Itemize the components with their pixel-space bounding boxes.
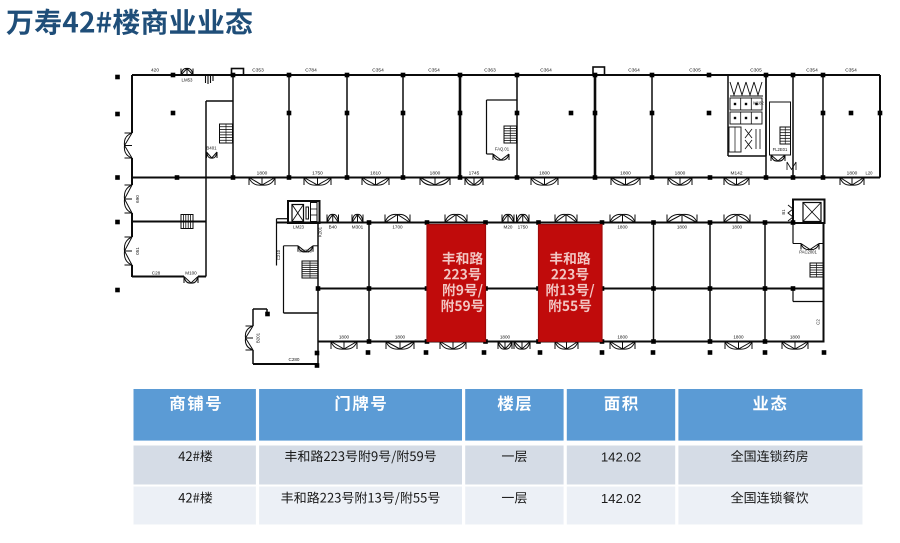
svg-text:M182: M182: [753, 101, 764, 106]
svg-text:051: 051: [135, 247, 140, 255]
svg-text:1800: 1800: [790, 335, 801, 340]
svg-text:1800: 1800: [430, 171, 441, 177]
svg-text:C354: C354: [845, 68, 857, 74]
svg-text:M301: M301: [352, 225, 364, 230]
svg-text:M142: M142: [731, 171, 743, 177]
svg-text:B401: B401: [206, 146, 217, 151]
svg-text:1800: 1800: [732, 225, 743, 230]
svg-text:B40: B40: [329, 225, 338, 230]
svg-text:PAC2001: PAC2001: [799, 250, 817, 255]
svg-text:1750: 1750: [312, 171, 323, 177]
svg-text:C280: C280: [289, 357, 300, 362]
svg-text:C354: C354: [806, 68, 818, 74]
svg-text:C2: C2: [816, 319, 821, 325]
svg-text:C364: C364: [540, 68, 552, 74]
svg-text:1800: 1800: [617, 225, 628, 230]
svg-text:C784: C784: [305, 68, 317, 74]
svg-text:C305: C305: [750, 68, 762, 74]
svg-text:1750: 1750: [518, 225, 529, 230]
svg-text:420: 420: [151, 68, 159, 74]
svg-text:LM53: LM53: [182, 78, 194, 83]
svg-text:FL2E01: FL2E01: [773, 147, 788, 152]
svg-text:M2010: M2010: [299, 249, 312, 254]
svg-text:1800: 1800: [539, 171, 550, 177]
svg-text:1700: 1700: [392, 225, 403, 230]
svg-text:142.02: 142.02: [601, 450, 641, 465]
svg-text:C364: C364: [628, 68, 640, 74]
svg-text:C354: C354: [428, 68, 440, 74]
svg-text:B201: B201: [256, 332, 261, 343]
svg-text:1800: 1800: [620, 171, 631, 177]
svg-text:142.02: 142.02: [601, 491, 641, 506]
svg-text:M20: M20: [504, 225, 513, 230]
svg-text:C353: C353: [252, 68, 264, 74]
svg-text:1745: 1745: [469, 171, 480, 177]
svg-text:1810: 1810: [370, 171, 381, 177]
svg-text:FAQ.01: FAQ.01: [495, 147, 510, 152]
svg-text:1800: 1800: [847, 171, 858, 177]
svg-text:690: 690: [135, 195, 140, 203]
svg-text:1800: 1800: [339, 335, 350, 340]
svg-text:L20: L20: [866, 171, 874, 176]
svg-text:C28: C28: [152, 271, 161, 276]
svg-text:1800: 1800: [395, 335, 406, 340]
svg-text:1800: 1800: [257, 171, 268, 177]
svg-text:B1: B1: [781, 209, 786, 215]
svg-text:C354: C354: [372, 68, 384, 74]
svg-text:1800: 1800: [677, 225, 688, 230]
svg-text:1800: 1800: [733, 335, 744, 340]
svg-text:C305: C305: [689, 68, 701, 74]
svg-text:1800: 1800: [500, 335, 511, 340]
svg-text:1800: 1800: [617, 335, 628, 340]
svg-text:LM23: LM23: [293, 225, 305, 230]
svg-text:C210: C210: [276, 249, 281, 260]
svg-text:M100: M100: [185, 271, 197, 276]
svg-text:1800: 1800: [675, 171, 686, 177]
svg-text:C363: C363: [484, 68, 496, 74]
